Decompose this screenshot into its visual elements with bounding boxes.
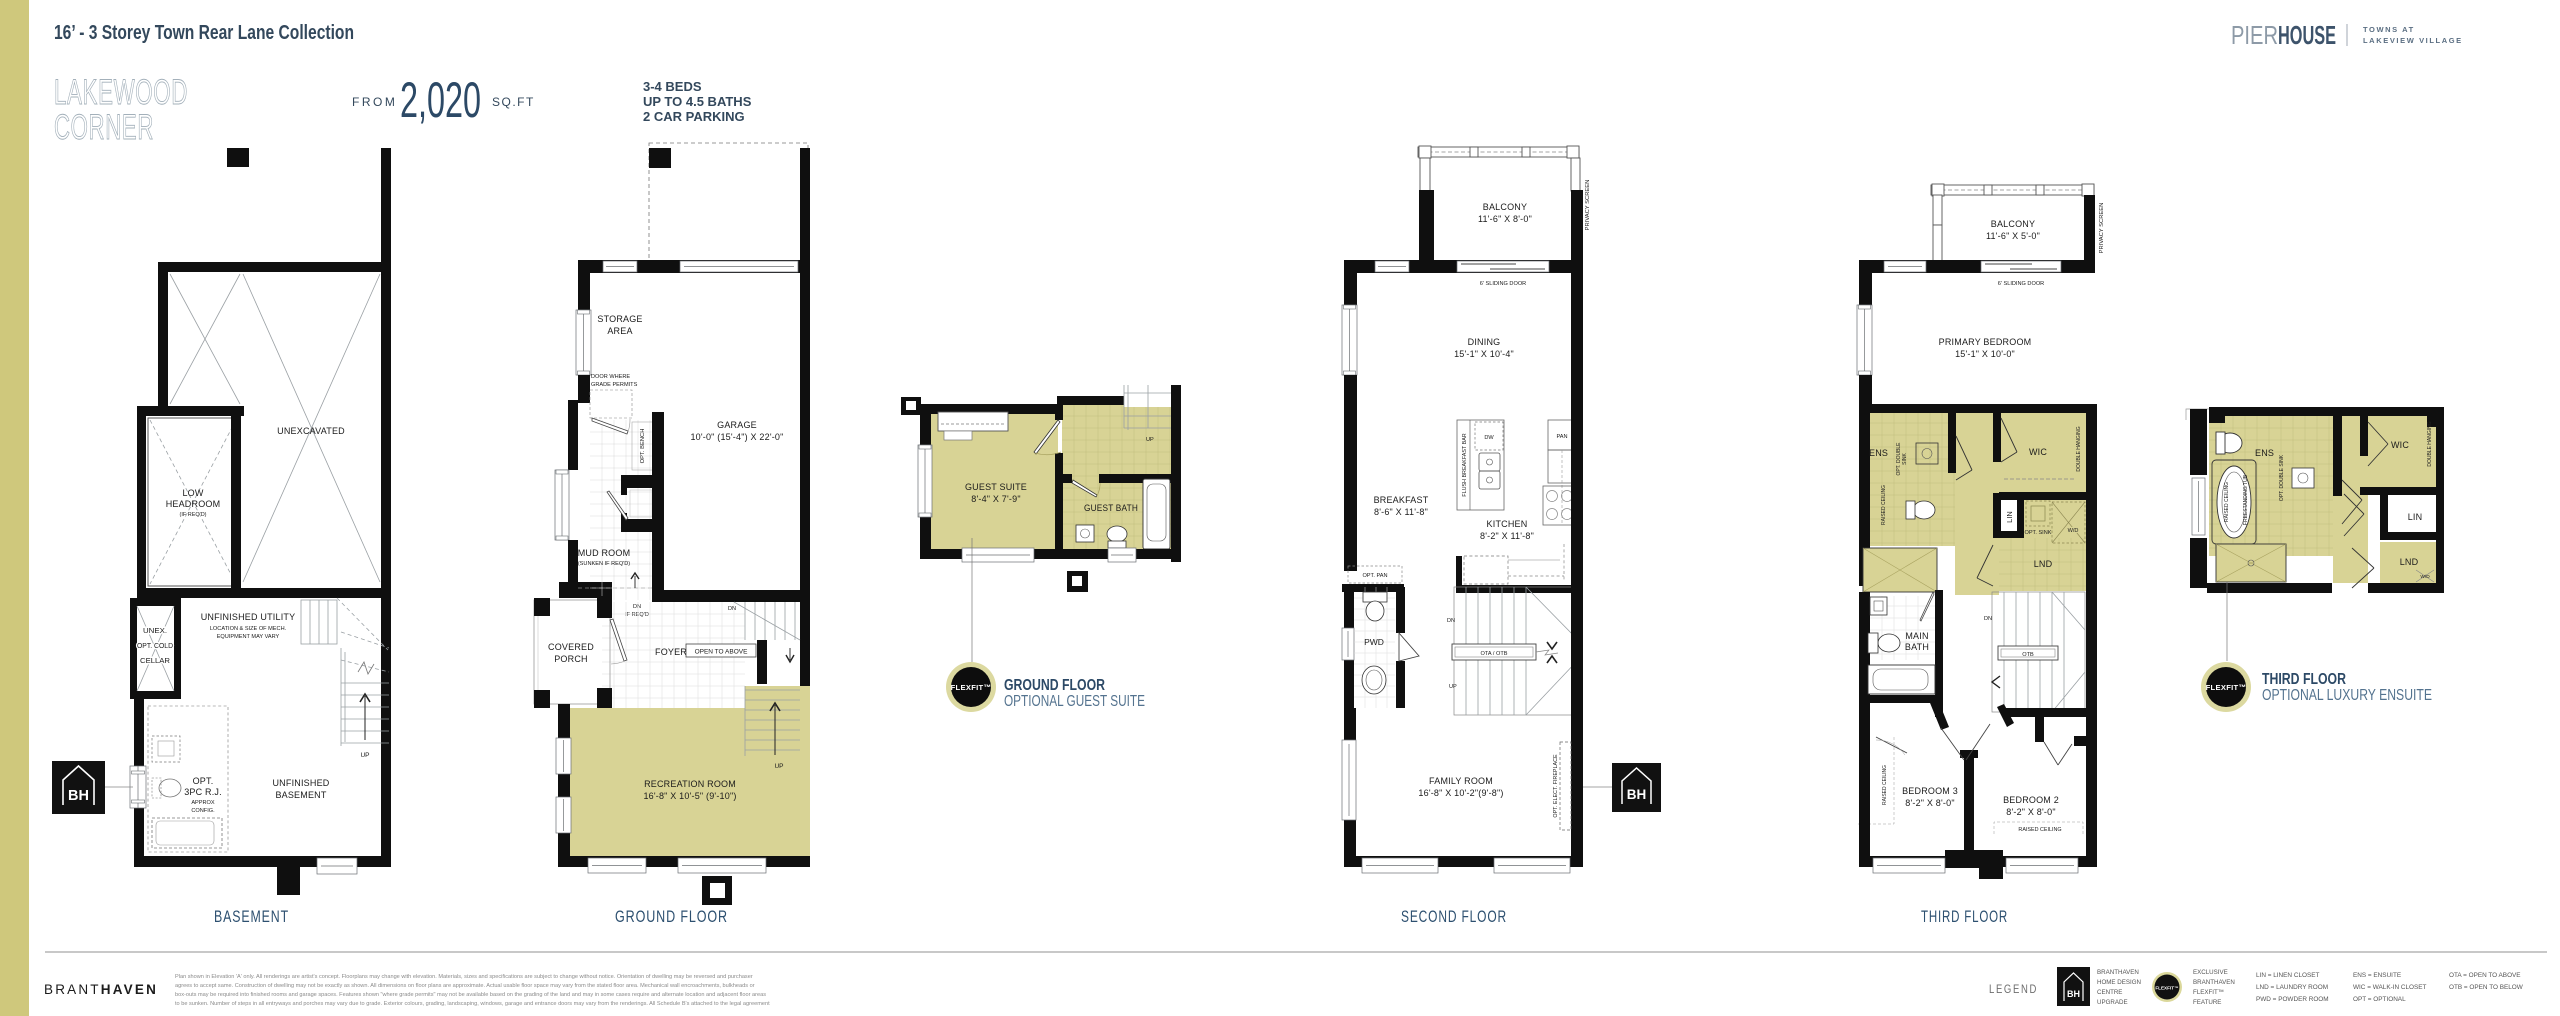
svg-text:UP: UP: [774, 763, 783, 770]
svg-text:8'-2" X 8'-0": 8'-2" X 8'-0": [2006, 807, 2055, 817]
svg-text:EQUIPMENT MAY VARY: EQUIPMENT MAY VARY: [217, 634, 280, 640]
svg-text:PWD = POWDER ROOM: PWD = POWDER ROOM: [2256, 996, 2329, 1003]
svg-text:Plan shown in Elevation 'A' on: Plan shown in Elevation 'A' only. All re…: [175, 974, 753, 980]
svg-text:GARAGE: GARAGE: [717, 420, 757, 430]
svg-text:ENS = ENSUITE: ENS = ENSUITE: [2353, 972, 2401, 979]
svg-text:AREA: AREA: [607, 326, 632, 336]
svg-text:TOWNS AT: TOWNS AT: [2363, 25, 2415, 34]
svg-text:GUEST SUITE: GUEST SUITE: [965, 482, 1027, 492]
svg-text:8'-4" X 7'-9": 8'-4" X 7'-9": [971, 494, 1020, 504]
svg-text:OPTIONAL GUEST SUITE: OPTIONAL GUEST SUITE: [1004, 693, 1145, 710]
svg-text:LOCATION & SIZE OF MECH.: LOCATION & SIZE OF MECH.: [210, 626, 287, 632]
svg-text:GROUND FLOOR: GROUND FLOOR: [1004, 677, 1105, 694]
svg-text:UP: UP: [1449, 684, 1457, 690]
svg-text:MUD ROOM: MUD ROOM: [578, 548, 631, 558]
svg-text:BREAKFAST: BREAKFAST: [1374, 495, 1429, 505]
svg-text:FLEXFIT™: FLEXFIT™: [2155, 986, 2179, 991]
svg-text:BEDROOM 3: BEDROOM 3: [1902, 786, 1958, 796]
svg-text:DW: DW: [1484, 435, 1494, 441]
svg-text:FREESTANDING TUB: FREESTANDING TUB: [2243, 474, 2249, 525]
svg-text:PRIVACY SCREEN: PRIVACY SCREEN: [1585, 180, 1591, 231]
svg-text:UPGRADE: UPGRADE: [2097, 999, 2128, 1006]
svg-text:16'-8" X 10'-2"(9'-8"): 16'-8" X 10'-2"(9'-8"): [1418, 788, 1503, 798]
svg-text:THIRD FLOOR: THIRD FLOOR: [1921, 907, 2008, 926]
svg-text:KITCHEN: KITCHEN: [1487, 519, 1528, 529]
svg-text:LAKEVIEW VILLAGE: LAKEVIEW VILLAGE: [2363, 36, 2463, 45]
svg-text:THIRD FLOOR: THIRD FLOOR: [2262, 671, 2346, 688]
svg-text:BASEMENT: BASEMENT: [214, 907, 289, 926]
svg-text:15'-1" X 10'-4": 15'-1" X 10'-4": [1454, 349, 1514, 359]
svg-text:DN: DN: [1984, 616, 1992, 622]
svg-text:LND = LAUNDRY ROOM: LND = LAUNDRY ROOM: [2256, 984, 2328, 991]
svg-text:APPROX: APPROX: [191, 800, 215, 806]
svg-text:to be sunken. Number of steps: to be sunken. Number of steps in all ent…: [175, 1001, 770, 1007]
svg-text:11'-6" X 8'-0": 11'-6" X 8'-0": [1478, 214, 1532, 224]
svg-text:OPT. DOUBLE SINK: OPT. DOUBLE SINK: [2279, 454, 2285, 501]
svg-text:16’ - 3 Storey Town Rear Lane: 16’ - 3 Storey Town Rear Lane Collection: [54, 22, 354, 44]
svg-text:LOW: LOW: [182, 488, 203, 498]
svg-text:DN: DN: [633, 604, 641, 610]
svg-text:FLEXFIT™: FLEXFIT™: [2193, 989, 2224, 996]
svg-text:PAN: PAN: [1556, 434, 1567, 440]
svg-text:WIC: WIC: [2029, 447, 2047, 457]
svg-text:6' SLIDING DOOR: 6' SLIDING DOOR: [1480, 281, 1526, 287]
svg-text:OPT. COLD: OPT. COLD: [137, 641, 174, 650]
svg-text:RAISED CEILING: RAISED CEILING: [1882, 765, 1888, 805]
svg-text:W/D: W/D: [2420, 574, 2430, 580]
svg-text:MAIN: MAIN: [1905, 631, 1928, 641]
svg-text:LAKEWOOD: LAKEWOOD: [54, 73, 188, 112]
svg-text:LEGEND: LEGEND: [1989, 984, 2038, 996]
svg-text:BH: BH: [2067, 989, 2080, 999]
svg-text:RAISED CEILING: RAISED CEILING: [2224, 482, 2230, 522]
svg-text:UNFINISHED: UNFINISHED: [272, 778, 329, 788]
svg-text:OPT.: OPT.: [193, 776, 214, 786]
svg-text:HOUSE: HOUSE: [2278, 20, 2336, 50]
svg-text:UNEX.: UNEX.: [143, 626, 167, 635]
svg-text:DOUBLE HANGING: DOUBLE HANGING: [2076, 426, 2082, 471]
svg-text:PWD: PWD: [1364, 637, 1384, 647]
svg-text:LIN = LINEN CLOSET: LIN = LINEN CLOSET: [2256, 972, 2319, 979]
svg-text:OTB: OTB: [2022, 652, 2034, 658]
svg-text:UNFINISHED UTILITY: UNFINISHED UTILITY: [201, 612, 296, 622]
svg-text:UP TO 4.5 BATHS: UP TO 4.5 BATHS: [643, 94, 752, 109]
svg-text:OTA = OPEN TO ABOVE: OTA = OPEN TO ABOVE: [2449, 972, 2521, 979]
svg-text:DOUBLE HANGING: DOUBLE HANGING: [2427, 421, 2433, 466]
svg-text:GROUND FLOOR: GROUND FLOOR: [615, 907, 728, 926]
svg-text:COVERED: COVERED: [548, 642, 594, 652]
svg-text:FLEXFIT™: FLEXFIT™: [951, 683, 992, 692]
svg-text:3PC R.J.: 3PC R.J.: [184, 787, 222, 797]
svg-text:RECREATION ROOM: RECREATION ROOM: [644, 779, 736, 789]
svg-text:CELLAR: CELLAR: [140, 656, 171, 665]
svg-text:PIER: PIER: [2231, 20, 2278, 50]
svg-text:2,020: 2,020: [400, 72, 481, 128]
svg-text:PORCH: PORCH: [554, 654, 588, 664]
svg-text:OTB = OPEN TO BELOW: OTB = OPEN TO BELOW: [2449, 984, 2524, 991]
svg-text:SQ.FT: SQ.FT: [492, 95, 535, 109]
svg-text:STORAGE: STORAGE: [597, 314, 642, 324]
svg-text:FLEXFIT™: FLEXFIT™: [2206, 683, 2247, 692]
svg-text:HEADROOM: HEADROOM: [166, 499, 221, 509]
svg-text:DN: DN: [1447, 618, 1455, 624]
svg-text:2 CAR PARKING: 2 CAR PARKING: [643, 109, 745, 124]
svg-text:11'-6" X 5'-0": 11'-6" X 5'-0": [1986, 231, 2040, 241]
svg-text:FOYER: FOYER: [655, 647, 687, 657]
svg-text:EXCLUSIVE: EXCLUSIVE: [2193, 969, 2228, 976]
svg-text:BALCONY: BALCONY: [1483, 202, 1527, 212]
svg-text:IF REQ'D: IF REQ'D: [625, 612, 649, 618]
svg-text:OTA / OTB: OTA / OTB: [1481, 651, 1508, 657]
svg-text:SINK: SINK: [1902, 453, 1908, 465]
svg-text:(IF REQ'D): (IF REQ'D): [179, 512, 206, 518]
svg-text:CENTRE: CENTRE: [2097, 989, 2122, 996]
svg-text:GRADE PERMITS: GRADE PERMITS: [591, 382, 638, 388]
svg-text:LND: LND: [2034, 559, 2053, 569]
svg-text:LIN: LIN: [2005, 511, 2014, 523]
svg-text:FROM: FROM: [352, 95, 397, 109]
svg-text:DOOR WHERE: DOOR WHERE: [591, 374, 630, 380]
svg-text:W/D: W/D: [2068, 528, 2079, 534]
svg-text:HOME DESIGN: HOME DESIGN: [2097, 979, 2141, 986]
svg-text:UP: UP: [1146, 437, 1154, 443]
svg-text:BH: BH: [68, 788, 89, 804]
svg-text:LND: LND: [2400, 557, 2419, 567]
svg-text:6' SLIDING DOOR: 6' SLIDING DOOR: [1998, 281, 2044, 287]
svg-text:LIN: LIN: [2408, 512, 2423, 522]
svg-text:8'-6" X 11'-8": 8'-6" X 11'-8": [1374, 507, 1428, 517]
svg-text:ENS: ENS: [2255, 448, 2274, 458]
svg-text:DINING: DINING: [1468, 337, 1501, 347]
svg-text:BRANTHAVEN: BRANTHAVEN: [44, 982, 158, 997]
svg-text:16'-8" X 10'-5" (9'-10"): 16'-8" X 10'-5" (9'-10"): [643, 791, 736, 801]
svg-text:RAISED CEILING: RAISED CEILING: [1881, 485, 1887, 525]
svg-text:3-4 BEDS: 3-4 BEDS: [643, 79, 702, 94]
svg-text:BRANTHAVEN: BRANTHAVEN: [2097, 969, 2139, 976]
svg-text:BH: BH: [1627, 787, 1647, 802]
svg-text:FAMILY ROOM: FAMILY ROOM: [1429, 776, 1493, 786]
svg-text:GUEST BATH: GUEST BATH: [1084, 503, 1138, 513]
svg-text:DN: DN: [728, 606, 736, 612]
svg-text:BASEMENT: BASEMENT: [275, 790, 326, 800]
svg-text:OPTIONAL LUXURY ENSUITE: OPTIONAL LUXURY ENSUITE: [2262, 687, 2432, 704]
svg-text:UP: UP: [360, 752, 369, 759]
svg-text:OPEN TO ABOVE: OPEN TO ABOVE: [695, 649, 749, 656]
svg-text:CONFIG.: CONFIG.: [191, 808, 215, 814]
svg-text:BRANTHAVEN: BRANTHAVEN: [2193, 979, 2235, 986]
svg-text:RAISED CEILING: RAISED CEILING: [2018, 827, 2061, 833]
svg-text:UNEXCAVATED: UNEXCAVATED: [277, 426, 345, 436]
svg-text:FLUSH BREAKFAST BAR: FLUSH BREAKFAST BAR: [1462, 433, 1468, 497]
svg-text:OPT. BENCH: OPT. BENCH: [640, 429, 646, 464]
svg-text:(SUNKEN IF REQ'D): (SUNKEN IF REQ'D): [578, 561, 630, 567]
svg-text:OPT = OPTIONAL: OPT = OPTIONAL: [2353, 996, 2406, 1003]
svg-text:WIC: WIC: [2391, 440, 2409, 450]
svg-text:WIC = WALK-IN CLOSET: WIC = WALK-IN CLOSET: [2353, 984, 2427, 991]
svg-text:15'-1" X 10'-0": 15'-1" X 10'-0": [1955, 349, 2015, 359]
svg-text:FEATURE: FEATURE: [2193, 999, 2221, 1006]
svg-text:PRIMARY BEDROOM: PRIMARY BEDROOM: [1939, 337, 2032, 347]
svg-text:OPT. PAN: OPT. PAN: [1362, 573, 1387, 579]
svg-text:BALCONY: BALCONY: [1991, 219, 2035, 229]
svg-text:8'-2" X 8'-0": 8'-2" X 8'-0": [1905, 798, 1954, 808]
svg-text:10'-0" (15'-4") X 22'-0": 10'-0" (15'-4") X 22'-0": [690, 432, 783, 442]
svg-text:BATH: BATH: [1905, 642, 1929, 652]
svg-text:agrees to accept same. Constru: agrees to accept same. Construction of d…: [175, 983, 755, 989]
svg-text:box-outs may be required into: box-outs may be required into finished r…: [175, 992, 766, 998]
svg-text:OPT. ELECT. FIREPLACE: OPT. ELECT. FIREPLACE: [1553, 754, 1559, 818]
svg-text:BEDROOM 2: BEDROOM 2: [2003, 795, 2059, 805]
svg-text:CORNER: CORNER: [54, 108, 154, 147]
svg-text:PRIVACY SCREEN: PRIVACY SCREEN: [2099, 203, 2105, 254]
svg-text:8'-2" X 11'-8": 8'-2" X 11'-8": [1480, 531, 1534, 541]
svg-text:OPT. SINK: OPT. SINK: [2024, 530, 2051, 536]
svg-text:SECOND FLOOR: SECOND FLOOR: [1401, 907, 1507, 926]
svg-text:ENS: ENS: [1869, 448, 1888, 458]
